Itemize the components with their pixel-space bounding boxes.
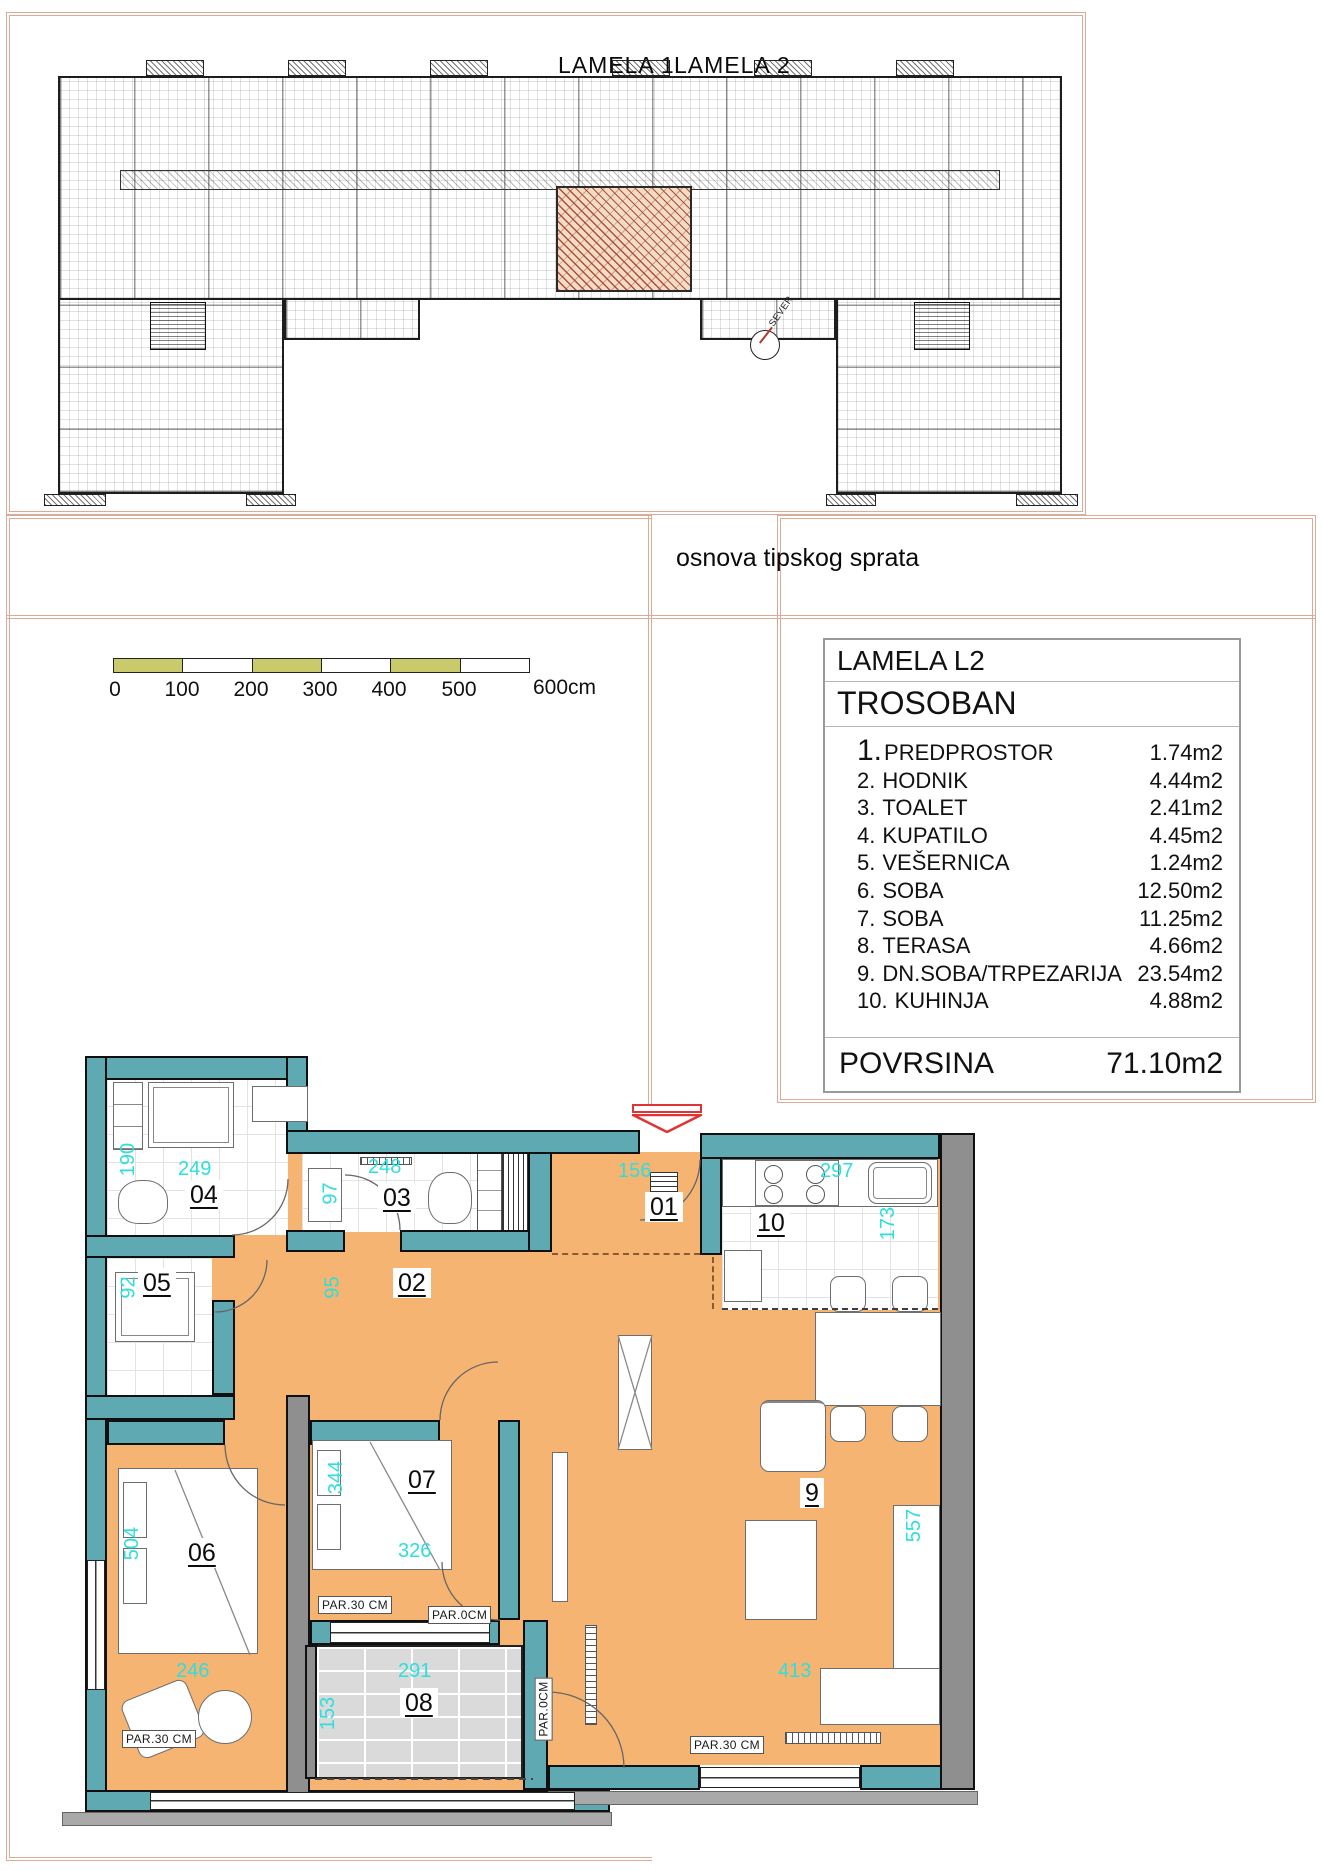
door-arc — [225, 1445, 285, 1505]
dimension-label: 326 — [398, 1540, 431, 1563]
dimension-label: 291 — [398, 1660, 431, 1683]
dimension-label: 246 — [176, 1660, 209, 1683]
dimension-label: 249 — [178, 1158, 211, 1181]
balcony — [754, 60, 812, 76]
parapet-label: PAR.0CM — [535, 1677, 553, 1740]
door-arc — [232, 1179, 288, 1235]
dimension-label: 248 — [368, 1156, 401, 1179]
building-caption: osnova tipskog sprata — [676, 544, 919, 573]
north-compass-icon — [750, 330, 780, 360]
ground-hatch — [246, 494, 296, 506]
dimension-label: 95 — [322, 1276, 345, 1298]
dimension-label: 413 — [778, 1660, 811, 1683]
dimension-label: 344 — [325, 1461, 348, 1494]
building-inner-stub-left — [284, 298, 420, 340]
room-label-07: 07 — [403, 1465, 441, 1495]
stair-core — [150, 302, 206, 350]
dimension-label: 297 — [820, 1160, 853, 1183]
scale-bar: 0 100 200 300 400 500 600cm — [113, 658, 613, 708]
wardrobe-cross — [618, 1335, 652, 1450]
door-arc — [215, 1260, 267, 1312]
table-subtitle: TROSOBAN — [825, 682, 1239, 727]
ground-hatch — [44, 494, 106, 506]
table-row: 10.KUHINJA4.88m2 — [857, 987, 1223, 1015]
dimension-label: 156 — [618, 1160, 651, 1183]
room-label-01: 01 — [645, 1192, 683, 1222]
room-label-02: 02 — [393, 1268, 431, 1298]
table-row: 1.PREDPROSTOR1.74m2 — [857, 737, 1223, 767]
scale-tick: 500 — [441, 678, 476, 702]
total-value: 71.10m2 — [1106, 1047, 1223, 1081]
stair-core — [914, 302, 970, 350]
scale-tick: 400 — [371, 678, 406, 702]
parapet-label: PAR.30 CM — [318, 1596, 392, 1614]
dimension-label: 153 — [317, 1697, 340, 1730]
room-label-04: 04 — [185, 1180, 223, 1210]
scale-end-label: 600cm — [533, 676, 596, 700]
dimension-label: 557 — [903, 1509, 926, 1542]
room-label-08: 08 — [400, 1688, 438, 1718]
apartment-info-table: LAMELA L2 TROSOBAN 1.PREDPROSTOR1.74m2 2… — [823, 638, 1241, 1093]
ground-hatch — [1016, 494, 1078, 506]
ground-hatch — [826, 494, 876, 506]
parapet-label: PAR.30 CM — [690, 1736, 764, 1754]
table-row: 6.SOBA12.50m2 — [857, 877, 1223, 905]
scale-segment — [321, 659, 390, 672]
parapet-label: PAR.0CM — [428, 1606, 491, 1624]
scale-segment — [114, 659, 182, 672]
scale-segment — [390, 659, 459, 672]
room-label-06: 06 — [183, 1538, 221, 1568]
dimension-label: 173 — [877, 1207, 900, 1240]
balcony — [430, 60, 488, 76]
table-row: 2.HODNIK4.44m2 — [857, 767, 1223, 795]
dimension-label: 92 — [118, 1276, 141, 1298]
balcony — [288, 60, 346, 76]
parapet-label: PAR.30 CM — [122, 1730, 196, 1748]
balcony — [612, 60, 670, 76]
table-title: LAMELA L2 — [825, 640, 1239, 682]
scale-segment — [460, 659, 529, 672]
section-divider — [6, 615, 1316, 619]
door-arc — [548, 1692, 624, 1768]
table-row: 5.VEŠERNICA1.24m2 — [857, 849, 1223, 877]
scale-tick: 300 — [302, 678, 337, 702]
scale-tick: 200 — [233, 678, 268, 702]
scale-segment — [252, 659, 321, 672]
door-arc — [440, 1362, 498, 1420]
scale-bar-segments — [113, 658, 530, 673]
table-row: 8.TERASA4.66m2 — [857, 932, 1223, 960]
table-row: 7.SOBA11.25m2 — [857, 905, 1223, 933]
table-row: 3.TOALET2.41m2 — [857, 794, 1223, 822]
dimension-label: 504 — [121, 1527, 144, 1560]
table-row: 9.DN.SOBA/TRPEZARIJA23.54m2 — [857, 960, 1223, 988]
floorplan-sheet: { "building": { "lamela1_label": "LAMELA… — [0, 0, 1322, 1871]
room-list: 1.PREDPROSTOR1.74m2 2.HODNIK4.44m2 3.TOA… — [825, 727, 1239, 1017]
scale-segment — [182, 659, 251, 672]
scale-tick: 100 — [164, 678, 199, 702]
left-column-right-border — [648, 515, 652, 1107]
dimension-label: 97 — [320, 1182, 343, 1204]
room-label-03: 03 — [378, 1183, 416, 1213]
balcony — [146, 60, 204, 76]
room-label-10: 10 — [752, 1208, 790, 1238]
table-row: 4.KUPATILO4.45m2 — [857, 822, 1223, 850]
scale-tick: 0 — [109, 678, 121, 702]
balcony — [896, 60, 954, 76]
dimension-label: 190 — [117, 1143, 140, 1176]
highlighted-apartment-unit — [556, 186, 692, 292]
room-label-05: 05 — [138, 1268, 176, 1298]
room-label-09: 9 — [800, 1478, 824, 1508]
